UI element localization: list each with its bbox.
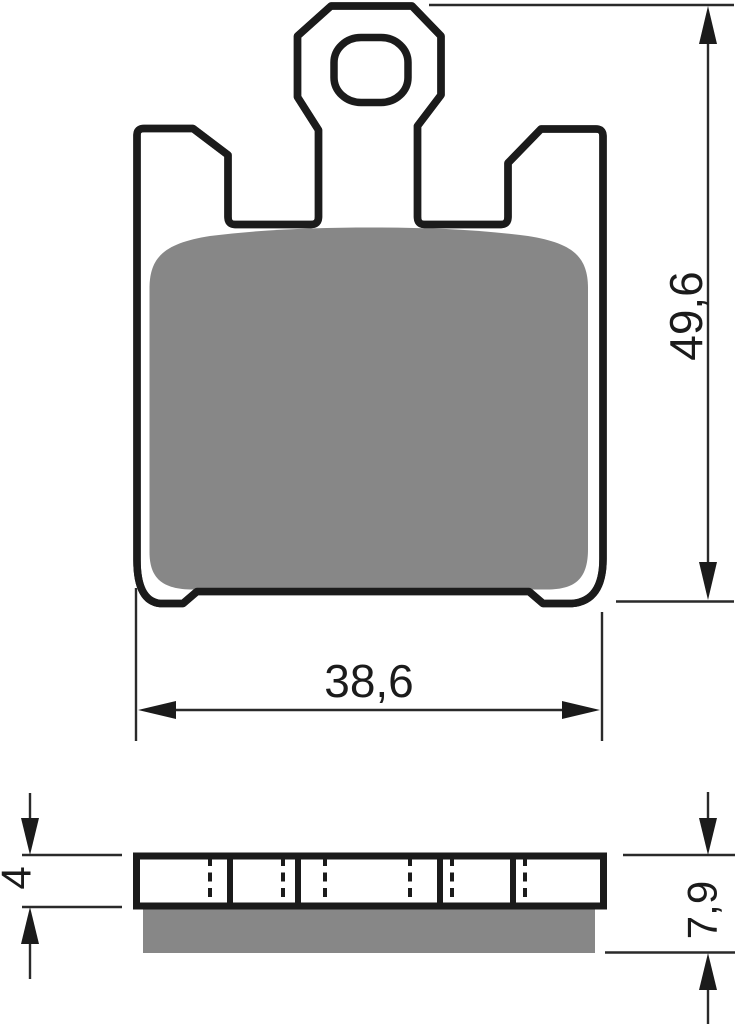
height-arrow-down xyxy=(699,562,717,600)
plate-arrow-down xyxy=(21,818,39,855)
plate-thickness-label: 4 xyxy=(0,866,40,889)
brake-pad-technical-drawing: 49,6 38,6 4 xyxy=(0,0,735,1024)
height-arrow-up xyxy=(699,6,717,44)
width-arrow-right xyxy=(562,701,600,719)
side-view xyxy=(137,856,604,953)
total-arrow-down xyxy=(699,818,717,855)
friction-material-front xyxy=(150,228,589,590)
height-dimension-label: 49,6 xyxy=(660,271,712,361)
total-thickness-label: 7,9 xyxy=(679,881,726,939)
width-arrow-left xyxy=(138,701,176,719)
backplate-side xyxy=(137,856,604,906)
width-dimension: 38,6 xyxy=(136,588,602,741)
total-thickness-dimension: 7,9 xyxy=(605,792,735,1024)
plate-thickness-dimension: 4 xyxy=(0,793,122,979)
front-view xyxy=(137,6,603,604)
plate-arrow-up xyxy=(21,907,39,944)
friction-material-side xyxy=(143,906,595,953)
total-arrow-up xyxy=(699,953,717,990)
mounting-tab-hole xyxy=(334,38,408,103)
brake-pad-drawing-page: 49,6 38,6 4 xyxy=(0,0,735,1024)
width-dimension-label: 38,6 xyxy=(324,655,414,707)
